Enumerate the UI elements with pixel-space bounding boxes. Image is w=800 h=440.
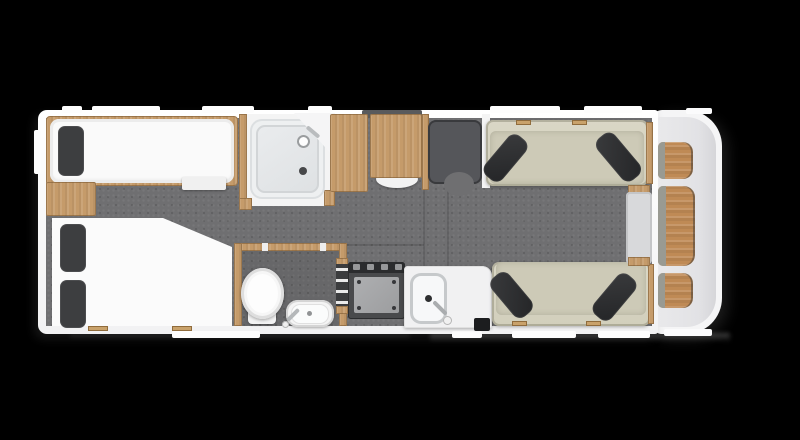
sofa-bottom-hinge-2 [586,321,601,326]
shower-wall-left [239,114,247,210]
screenshot-canvas [0,0,800,440]
window-top-3 [202,106,254,113]
toilet-basin-knob [282,321,289,328]
toilet-room-wall-top [234,243,347,251]
toilet-bowl-inner [247,274,278,313]
ladder-post-bottom [336,306,348,314]
window-top-5 [490,106,560,113]
window-top-6 [584,106,642,113]
bed-hinge-1 [88,326,108,331]
shower-head-icon [297,135,310,148]
caravan-floorplan [0,0,800,440]
toilet-door-cap-2 [320,243,326,251]
hob-screw-3 [357,306,361,310]
hob-screw-1 [357,280,361,284]
wardrobe-left [330,114,368,192]
bed-step [182,177,226,190]
front-seat-bottom-armrest [658,273,665,308]
toilet-room-wall-left [234,243,242,326]
kitchen-sink-drain [425,295,432,302]
window-top-front [686,108,712,114]
shower-post-bottom-left [239,198,252,210]
hob-screw-2 [392,280,396,284]
sofa-bottom-wood-end [648,264,654,324]
waste-bin [474,318,490,331]
hob-knob-2 [367,264,374,270]
entry-door-arc [444,172,474,196]
left-cabinet [46,182,96,216]
window-bottom-2 [452,331,482,338]
single-bed-pillow [58,126,84,176]
hob-screw-4 [392,306,396,310]
lounge-table-cap-bottom [628,257,650,266]
sofa-top-hinge-1 [516,120,531,125]
lounge-table-top [626,192,652,264]
hob-knob-4 [395,264,402,270]
shower-drain [299,167,307,175]
toilet-door-cap-1 [262,243,268,251]
sofa-top-wood-end [646,122,653,184]
floor-seam-2 [447,188,449,266]
front-seat-top-armrest [658,142,665,179]
hob-knob-1 [353,264,360,270]
bed-hinge-2 [172,326,192,331]
kitchen-faucet-knob [443,316,452,325]
bunk-ladder [336,264,348,308]
floor-seam-3 [346,244,424,246]
corner-bed-pillow-1 [60,224,86,272]
shower-post-bottom-right [324,190,335,206]
window-left-wall [34,130,41,174]
window-bottom-4 [598,331,650,338]
toilet-basin-drain [307,311,312,316]
shower-tray-inner [256,125,319,193]
hob-knob-3 [381,264,388,270]
window-top-4 [308,106,332,113]
window-bottom-1 [172,331,260,338]
sofa-bottom-hinge-1 [512,321,527,326]
window-bottom-3 [512,331,576,338]
wardrobe-right [370,114,422,178]
window-top-2 [92,106,160,113]
sofa-top-hinge-2 [572,120,587,125]
front-sideboard-trim [658,186,666,266]
window-bottom-front [664,329,712,336]
floor-seam-1 [423,186,425,266]
corner-bed-pillow-2 [60,280,86,328]
window-top-1 [62,106,82,113]
